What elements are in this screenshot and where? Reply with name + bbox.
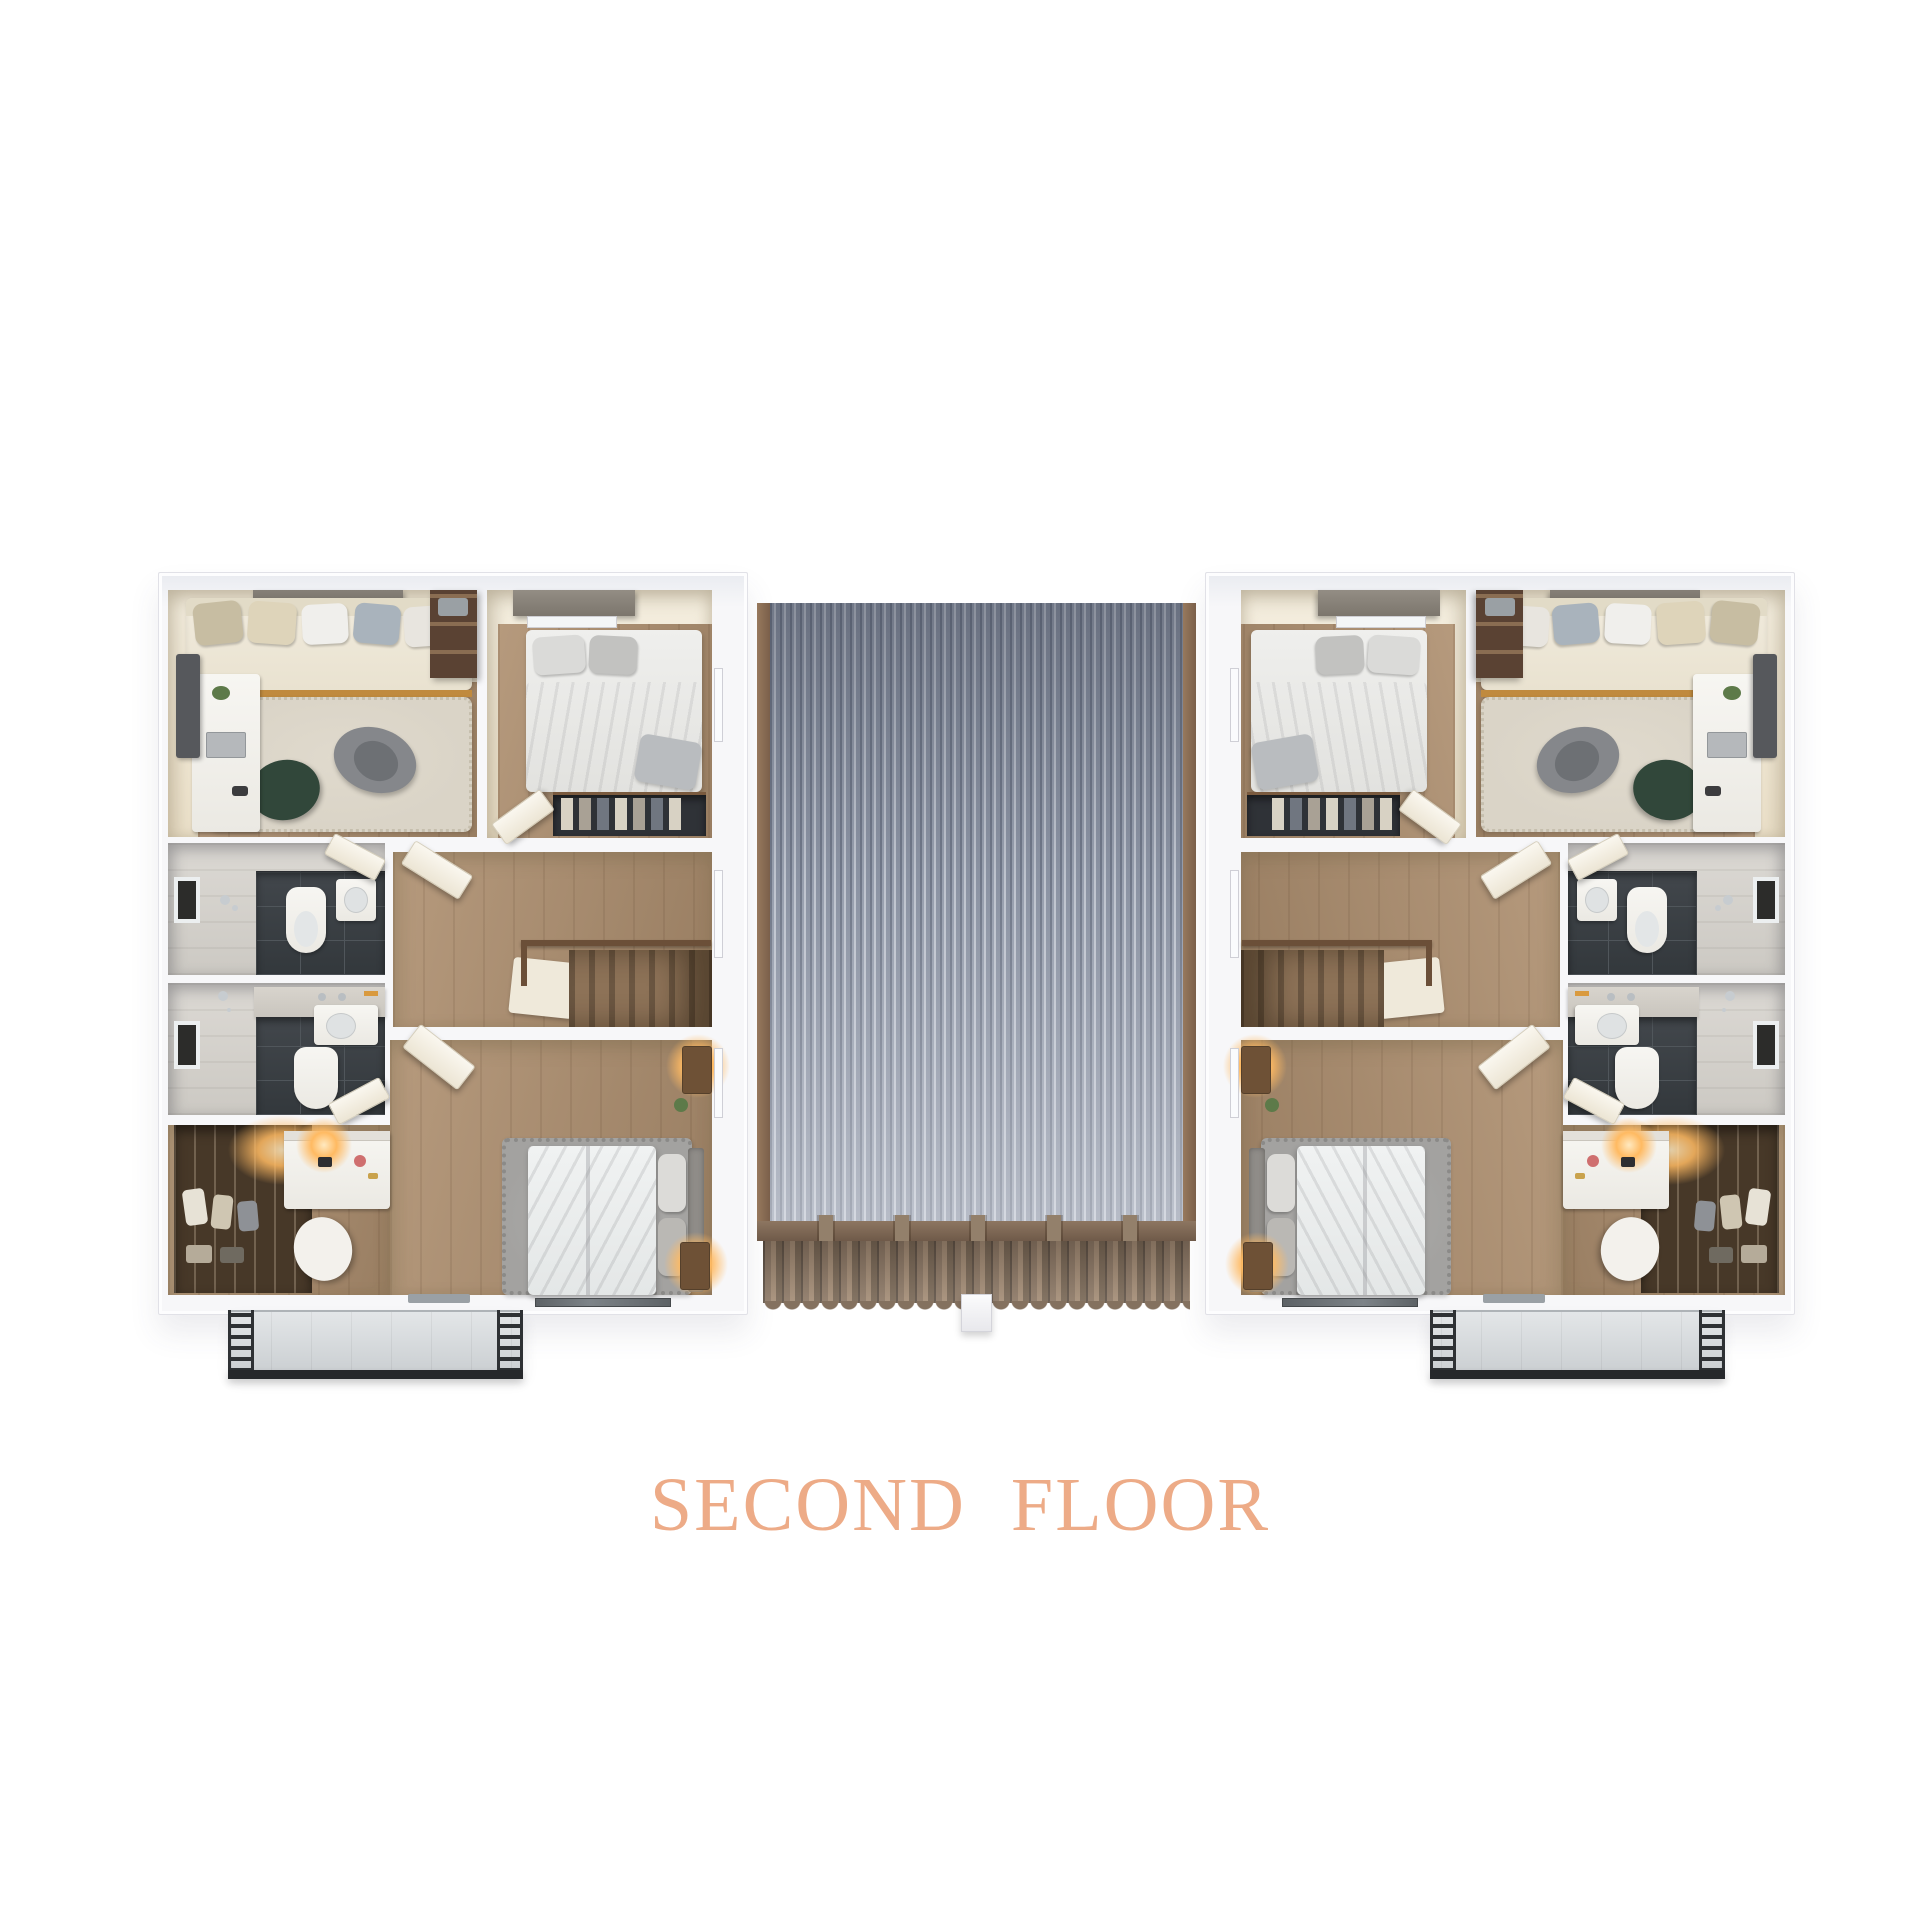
stage: SECOND FLOOR bbox=[0, 0, 1920, 1920]
hallway bbox=[1241, 852, 1560, 1027]
pillow bbox=[352, 602, 401, 646]
stair-railing-post bbox=[521, 940, 527, 986]
study-room bbox=[1476, 590, 1785, 837]
pillow bbox=[192, 600, 244, 647]
bathroom-upper bbox=[168, 843, 385, 975]
pillow bbox=[1315, 635, 1365, 675]
plant bbox=[1265, 1098, 1279, 1112]
nightstand bbox=[1241, 1046, 1271, 1094]
pillow bbox=[247, 600, 298, 645]
cosmetics bbox=[318, 1157, 332, 1167]
window-shade bbox=[1318, 590, 1440, 616]
folded-clothes bbox=[220, 1247, 244, 1263]
faucet bbox=[318, 993, 326, 1001]
desk-plant bbox=[1723, 686, 1741, 700]
toilet-seat bbox=[1635, 911, 1659, 947]
shelf-items bbox=[438, 598, 468, 616]
balcony-railing bbox=[1699, 1310, 1725, 1372]
hanging-clothes bbox=[1272, 798, 1392, 830]
window bbox=[1336, 616, 1426, 628]
stair-railing-post bbox=[1426, 940, 1432, 986]
balcony-rail-bar bbox=[1430, 1370, 1725, 1379]
roof-trim-left bbox=[757, 603, 770, 1225]
pillow bbox=[1709, 600, 1761, 647]
balcony-railing bbox=[228, 1310, 254, 1372]
toilet bbox=[1615, 1047, 1659, 1109]
stair-railing bbox=[1242, 940, 1432, 946]
pillow bbox=[532, 634, 587, 676]
pillow bbox=[588, 635, 638, 675]
window-shade bbox=[513, 590, 635, 616]
stair-steps bbox=[569, 950, 712, 1027]
wall-window bbox=[714, 1048, 723, 1118]
stair-steps bbox=[1241, 950, 1384, 1027]
bathroom-window bbox=[174, 1021, 200, 1069]
duvet-texture bbox=[528, 1146, 656, 1295]
towel bbox=[1575, 991, 1589, 996]
hanging-clothes bbox=[237, 1200, 260, 1232]
laptop bbox=[1707, 732, 1747, 758]
folded-clothes bbox=[1709, 1247, 1733, 1263]
tv-panel bbox=[176, 654, 200, 758]
study-room bbox=[168, 590, 477, 837]
pillow bbox=[1367, 634, 1422, 676]
stair-railing bbox=[521, 940, 711, 946]
unit-left bbox=[158, 572, 748, 1378]
chimney bbox=[961, 1294, 992, 1332]
pillow bbox=[1551, 602, 1600, 646]
balcony-floor bbox=[1430, 1310, 1722, 1370]
plant bbox=[674, 1098, 688, 1112]
wall-window bbox=[1230, 1048, 1239, 1118]
floor-title: SECOND FLOOR bbox=[0, 1462, 1920, 1549]
toilet bbox=[294, 1047, 338, 1109]
toilet-seat bbox=[294, 911, 318, 947]
balcony-railing bbox=[497, 1310, 523, 1372]
master-bedroom bbox=[390, 1040, 712, 1295]
hanging-clothes bbox=[561, 798, 681, 830]
nightstand bbox=[680, 1242, 710, 1290]
pillow bbox=[1656, 600, 1707, 645]
flowers bbox=[1587, 1155, 1599, 1167]
duvet-crease bbox=[1363, 1146, 1367, 1295]
sliding-glass-door bbox=[535, 1298, 671, 1307]
bathroom-lower bbox=[1568, 983, 1785, 1115]
nightstand bbox=[682, 1046, 712, 1094]
balcony-floor bbox=[231, 1310, 523, 1370]
walk-in-closet bbox=[1563, 1125, 1785, 1295]
bathroom-upper bbox=[1568, 843, 1785, 975]
unit-right bbox=[1205, 572, 1795, 1378]
master-bedroom bbox=[1241, 1040, 1563, 1295]
sliding-door-track bbox=[408, 1294, 470, 1303]
cosmetics bbox=[1621, 1157, 1635, 1167]
shelf-items bbox=[1485, 598, 1515, 616]
balcony-railing bbox=[1430, 1310, 1456, 1372]
stair-landing bbox=[1375, 957, 1445, 1019]
sink-bowl bbox=[344, 887, 368, 913]
folded-clothes bbox=[186, 1245, 212, 1263]
duvet-texture bbox=[1297, 1146, 1425, 1295]
pillow bbox=[1604, 603, 1652, 645]
desk-items bbox=[1705, 786, 1721, 796]
towel bbox=[364, 991, 378, 996]
pillow bbox=[658, 1154, 686, 1212]
roof bbox=[757, 603, 1196, 1315]
tv-panel bbox=[1753, 654, 1777, 758]
desk-plant bbox=[212, 686, 230, 700]
roof-ridge-caps bbox=[759, 1215, 1196, 1243]
perfume bbox=[368, 1173, 378, 1179]
pillow bbox=[1267, 1154, 1295, 1212]
window bbox=[527, 616, 617, 628]
faucet bbox=[1627, 993, 1635, 1001]
nightstand bbox=[1243, 1242, 1273, 1290]
sink-bowl bbox=[1585, 887, 1609, 913]
small-bedroom bbox=[1241, 590, 1466, 838]
wall-window bbox=[714, 668, 723, 742]
perfume bbox=[1575, 1173, 1585, 1179]
bathroom-window bbox=[174, 877, 200, 923]
flowers bbox=[354, 1155, 366, 1167]
shower-fixture bbox=[1725, 991, 1735, 1001]
shower-fixture bbox=[220, 895, 230, 905]
wall-window bbox=[1230, 668, 1239, 742]
small-bedroom bbox=[487, 590, 712, 838]
roof-metal-shading bbox=[770, 603, 1183, 1223]
sink-bowl bbox=[1597, 1013, 1627, 1039]
bathroom-window bbox=[1753, 1021, 1779, 1069]
balcony-rail-bar bbox=[228, 1370, 523, 1379]
bathroom-lower bbox=[168, 983, 385, 1115]
sink-bowl bbox=[326, 1013, 356, 1039]
hallway bbox=[393, 852, 712, 1027]
wall-window bbox=[1230, 870, 1239, 958]
shower-fixture bbox=[218, 991, 228, 1001]
folded-clothes bbox=[1741, 1245, 1767, 1263]
hanging-clothes bbox=[210, 1194, 233, 1230]
roof-trim-right bbox=[1183, 603, 1196, 1225]
hanging-clothes bbox=[1719, 1194, 1742, 1230]
laptop bbox=[206, 732, 246, 758]
walk-in-closet bbox=[168, 1125, 390, 1295]
duvet-crease bbox=[586, 1146, 590, 1295]
desk-items bbox=[232, 786, 248, 796]
pillow bbox=[301, 603, 349, 645]
wall-window bbox=[714, 870, 723, 958]
sliding-door-track bbox=[1483, 1294, 1545, 1303]
stair-landing bbox=[508, 957, 578, 1019]
sliding-glass-door bbox=[1282, 1298, 1418, 1307]
bathroom-window bbox=[1753, 877, 1779, 923]
shower-fixture bbox=[1723, 895, 1733, 905]
hanging-clothes bbox=[1694, 1200, 1717, 1232]
